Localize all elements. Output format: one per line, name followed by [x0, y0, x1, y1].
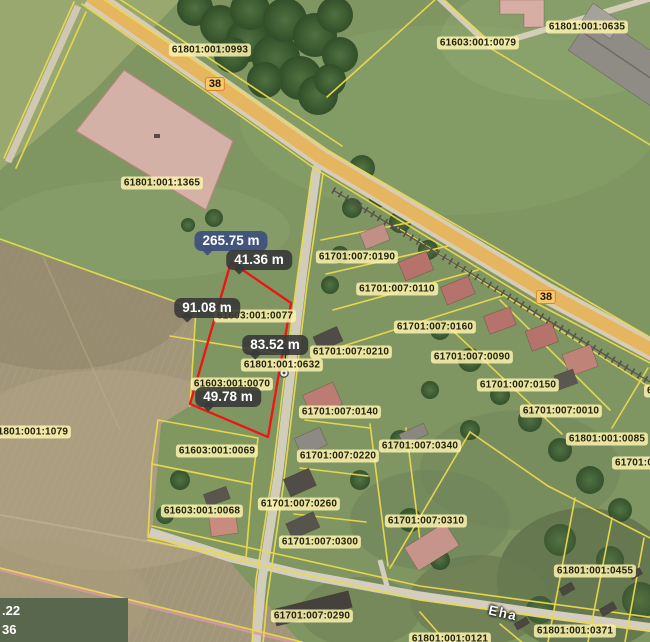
cadastral-label: 61801:001:0993: [169, 44, 251, 57]
segment-length-badge: 49.78 m: [195, 387, 261, 407]
cadastral-label: 61603:001:0079: [437, 37, 519, 50]
cadastral-label: 61701:007:0310: [385, 515, 467, 528]
cadastral-label: 61701:00: [612, 457, 650, 470]
cadastral-label: 61701:007:0220: [297, 450, 379, 463]
cadastral-label: 61701:007:0210: [310, 346, 392, 359]
cadastral-label: 61701:007:0150: [477, 379, 559, 392]
cadastral-label: 61701:007:0090: [431, 351, 513, 364]
cadastral-label: 61801:001:0121: [409, 633, 491, 642]
cadastral-label: 61801:001:0455: [554, 565, 636, 578]
cadastral-label: 61801:001:0371: [534, 625, 616, 638]
total-length-badge: 265.75 m: [194, 231, 267, 251]
cadastral-label: 61701:007:0110: [356, 283, 438, 296]
cadastral-label: 61603:001:0069: [176, 445, 258, 458]
cadastral-label: 6: [644, 385, 650, 398]
segment-length-badge: 91.08 m: [174, 298, 240, 318]
cadastral-label: 61801:001:0085: [566, 433, 648, 446]
cadastral-label: 61701:007:0160: [394, 321, 476, 334]
cadastral-label: 61701:007:0260: [258, 498, 340, 511]
road-number-badge: 38: [536, 290, 556, 304]
segment-length-badge: 83.52 m: [242, 335, 308, 355]
cadastral-label: 61801:001:1365: [121, 177, 203, 190]
segment-length-badge: 41.36 m: [226, 250, 292, 270]
map-viewport[interactable]: 61801:001:0993 61603:001:0079 61801:001:…: [0, 0, 650, 642]
cadastral-label: 61801:001:0635: [546, 21, 628, 34]
cadastral-label: 61701:007:0300: [279, 536, 361, 549]
cadastral-label: 61701:007:0340: [379, 440, 461, 453]
cadastral-label: 61701:007:0190: [316, 251, 398, 264]
road-number-badge: 38: [205, 77, 225, 91]
coordinate-readout-line2: 36: [2, 620, 128, 639]
coordinate-readout-line1: .22: [2, 601, 128, 620]
cadastral-label: 61701:007:0290: [271, 610, 353, 623]
cadastral-label: 61701:007:0010: [520, 405, 602, 418]
cadastral-label: 61701:007:0140: [299, 406, 381, 419]
cadastral-label: 61801:001:0632: [241, 359, 323, 372]
cadastral-label: 61603:001:0068: [161, 505, 243, 518]
coordinate-readout: .22 36: [0, 598, 128, 642]
cadastral-label: 61801:001:1079: [0, 426, 71, 439]
